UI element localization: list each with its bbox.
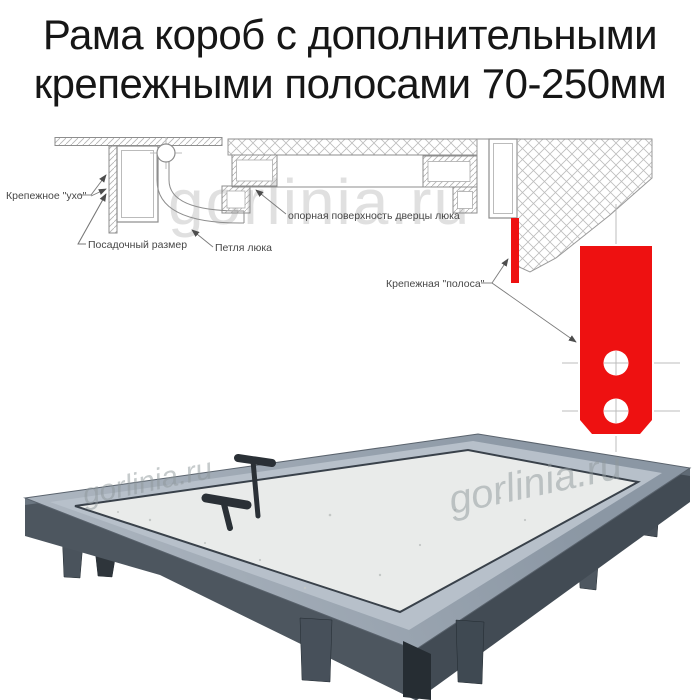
label-support-surface: опорная поверхность дверцы люка: [288, 210, 460, 222]
label-fastening-strip: Крепежная "полоса": [386, 278, 485, 290]
label-fastening-ear: Крепежное "ухо": [6, 190, 87, 202]
product-title: Рама короб с дополнительными крепежными …: [0, 10, 700, 108]
label-fit-size: Посадочный размер: [88, 239, 187, 251]
label-hinge: Петля люка: [215, 242, 272, 254]
ceiling-panel: [228, 139, 477, 155]
photo-leg-front-left: [300, 618, 332, 682]
product-title-line2: крепежными полосами 70-250мм: [0, 59, 700, 108]
product-photo: gorlinia.ru gorlinia.ru: [25, 434, 690, 700]
product-title-line1: Рама короб с дополнительными: [0, 10, 700, 59]
photo-leg-front-right: [456, 620, 484, 684]
handle-back-bar: [238, 458, 272, 463]
technical-diagram: gorlinia.ru: [6, 137, 680, 452]
product-image: gorlinia.ru: [0, 0, 700, 700]
red-fastening-strip: [511, 218, 519, 283]
red-strip-detail: [562, 204, 680, 452]
fastening-ear: [109, 146, 117, 233]
hinge-pivot: [157, 144, 175, 162]
ceiling-strip-left: [55, 138, 222, 146]
